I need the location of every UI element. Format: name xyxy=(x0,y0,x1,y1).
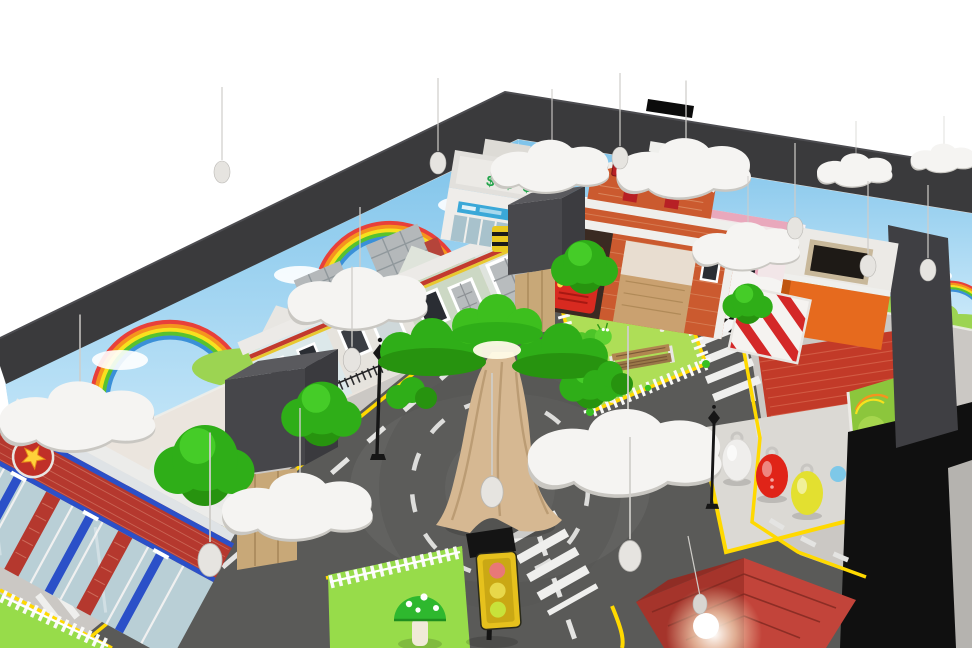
playground-render: $ $ $ Fire Department xyxy=(0,0,972,648)
scene-svg: $ $ $ Fire Department xyxy=(0,0,972,648)
right-wall-pillar xyxy=(888,225,958,448)
tree-light xyxy=(473,341,521,359)
